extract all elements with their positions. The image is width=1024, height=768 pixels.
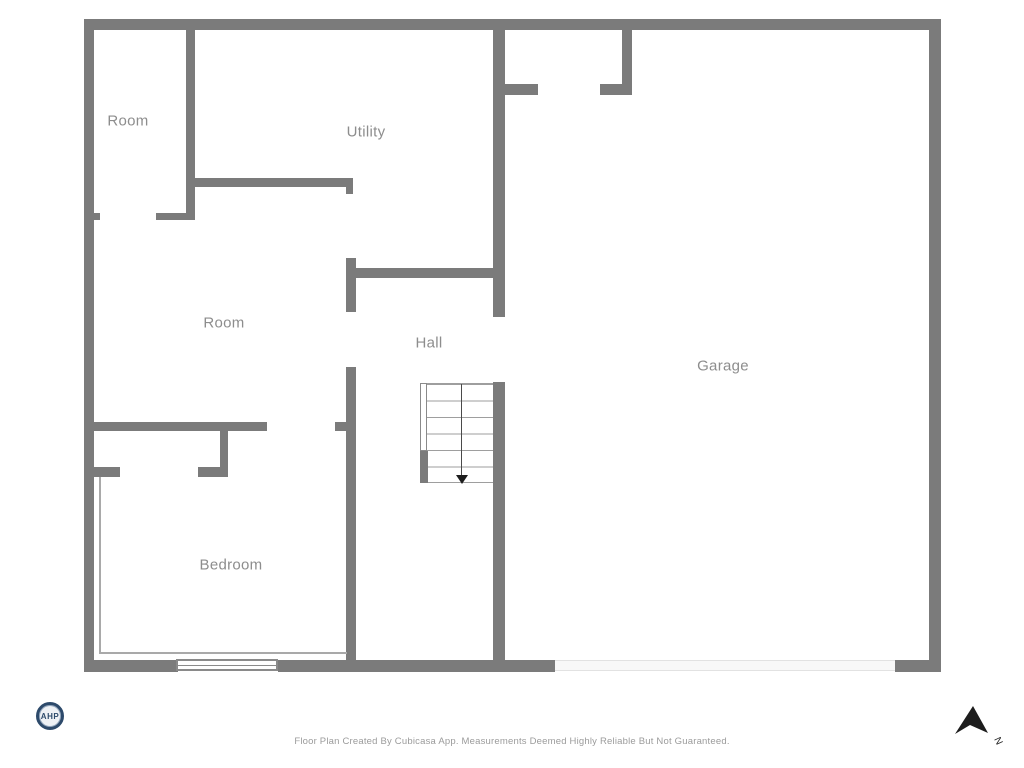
room-label-hall: Hall — [415, 335, 442, 352]
room-label-bedroom: Bedroom — [200, 557, 263, 574]
window-bedroom — [176, 659, 278, 671]
wall-bedroom-top-left — [94, 467, 120, 477]
window-mullion-line — [178, 665, 276, 666]
wall-main-vertical-upper — [493, 30, 505, 317]
north-arrow-shape — [955, 706, 988, 734]
wall-main-vertical-lower — [493, 382, 505, 660]
room-label-room1: Room — [107, 113, 148, 130]
staircase-down-arrow-icon — [456, 475, 468, 484]
disclaimer-text: Floor Plan Created By Cubicasa App. Meas… — [0, 736, 1024, 747]
north-label: N — [991, 736, 1004, 747]
wall-closet-right — [622, 30, 632, 95]
wall-room2-bedroom-right — [346, 367, 356, 672]
wall-room2-right-upper — [346, 258, 356, 312]
wall-exterior-bottom-center — [278, 660, 555, 672]
ahp-logo-badge: AHP — [36, 702, 64, 730]
wall-exterior-bottom-right — [895, 660, 941, 672]
wall-exterior-left — [84, 19, 94, 672]
wall-utility-bottom — [195, 178, 353, 187]
garage-door-opening — [555, 660, 895, 671]
wall-exterior-bottom-left — [84, 660, 178, 672]
wall-closet-bottom-stub-left — [505, 84, 538, 95]
bedroom-inset-line-horizontal — [99, 652, 347, 654]
room-label-room2: Room — [203, 315, 244, 332]
wall-closet-bottom-stub-right — [600, 84, 622, 95]
wall-exterior-top — [84, 19, 941, 30]
room-label-utility: Utility — [347, 124, 386, 141]
room-label-garage: Garage — [697, 358, 749, 375]
wall-room1-bottom-stub — [94, 213, 100, 220]
staircase-treads — [427, 383, 493, 483]
wall-room1-bottom — [156, 213, 195, 220]
wall-exterior-right — [929, 19, 941, 672]
staircase-railing — [420, 383, 427, 451]
wall-room1-right — [186, 30, 195, 220]
staircase-wall-segment — [420, 451, 428, 483]
wall-bedroom-top-right — [198, 467, 228, 477]
bedroom-inset-line-vertical — [99, 477, 101, 653]
north-compass-icon: N — [945, 698, 1009, 750]
staircase-direction-line — [461, 384, 462, 475]
wall-utility-bottom-stub — [346, 187, 353, 194]
wall-hall-top — [356, 268, 493, 278]
wall-room2-bottom-stub — [335, 422, 347, 431]
ahp-logo-text: AHP — [41, 712, 59, 721]
wall-room2-bottom — [94, 422, 267, 431]
floor-plan-canvas: Room Utility Room Hall Garage Bedroom AH… — [0, 0, 1024, 768]
